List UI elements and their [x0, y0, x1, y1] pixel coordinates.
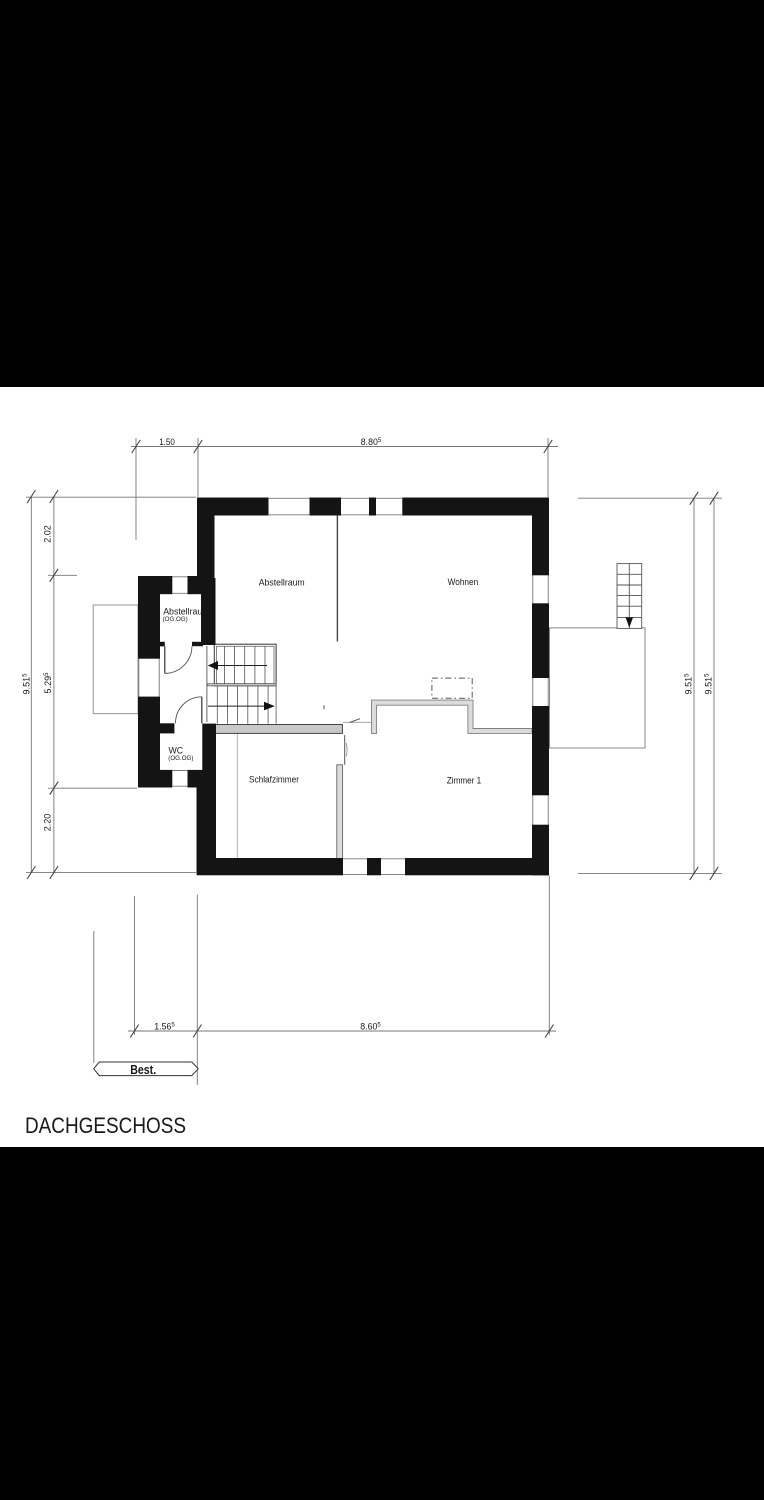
svg-text:Schlafzimmer: Schlafzimmer — [249, 775, 299, 786]
svg-text:(OG.OG): (OG.OG) — [163, 616, 188, 623]
svg-text:(OG.OG): (OG.OG) — [168, 755, 193, 762]
svg-text:DACHGESCHOSS: DACHGESCHOSS — [25, 1113, 186, 1138]
svg-text:Wohnen: Wohnen — [448, 577, 479, 588]
svg-text:2.20: 2.20 — [43, 814, 53, 832]
svg-text:Zimmer 1: Zimmer 1 — [447, 776, 481, 787]
svg-text:Best.: Best. — [130, 1063, 156, 1077]
svg-text:Abstellraum: Abstellraum — [259, 577, 305, 588]
svg-text:1.50: 1.50 — [159, 437, 175, 447]
svg-text:2.02: 2.02 — [43, 525, 53, 543]
svg-text:WC: WC — [169, 745, 184, 755]
